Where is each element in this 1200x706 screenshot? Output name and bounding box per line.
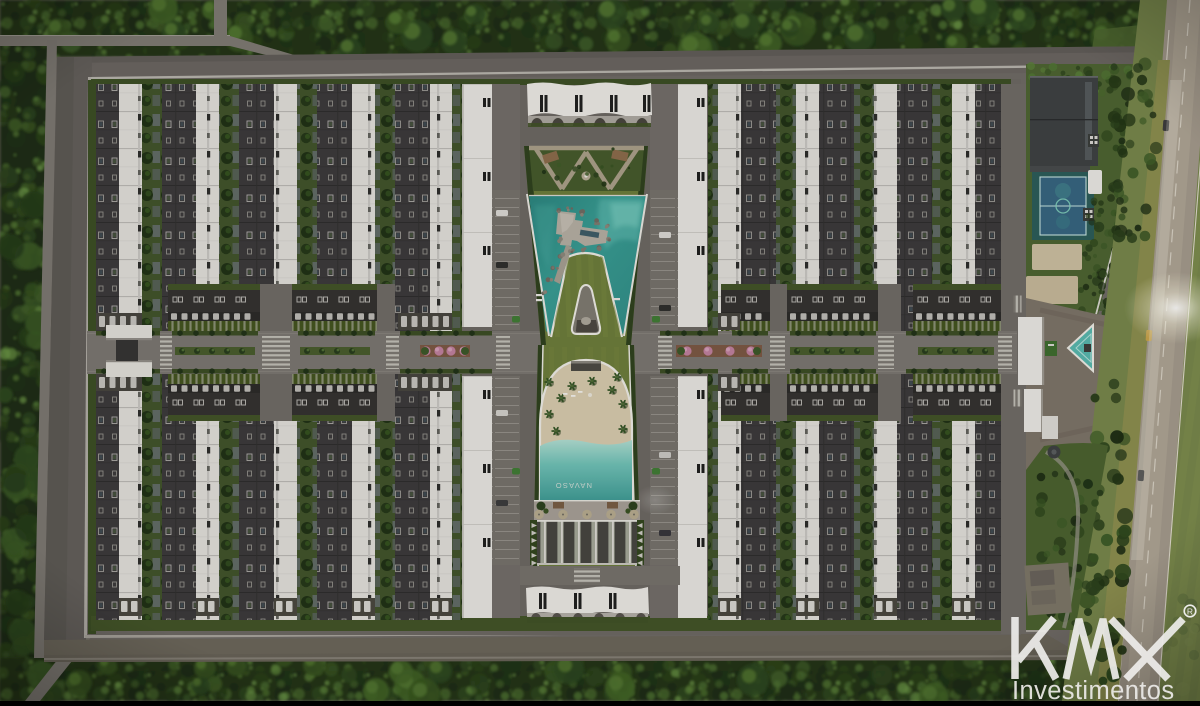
svg-text:Investimentos: Investimentos — [1012, 677, 1175, 701]
svg-text:R: R — [1187, 607, 1193, 617]
